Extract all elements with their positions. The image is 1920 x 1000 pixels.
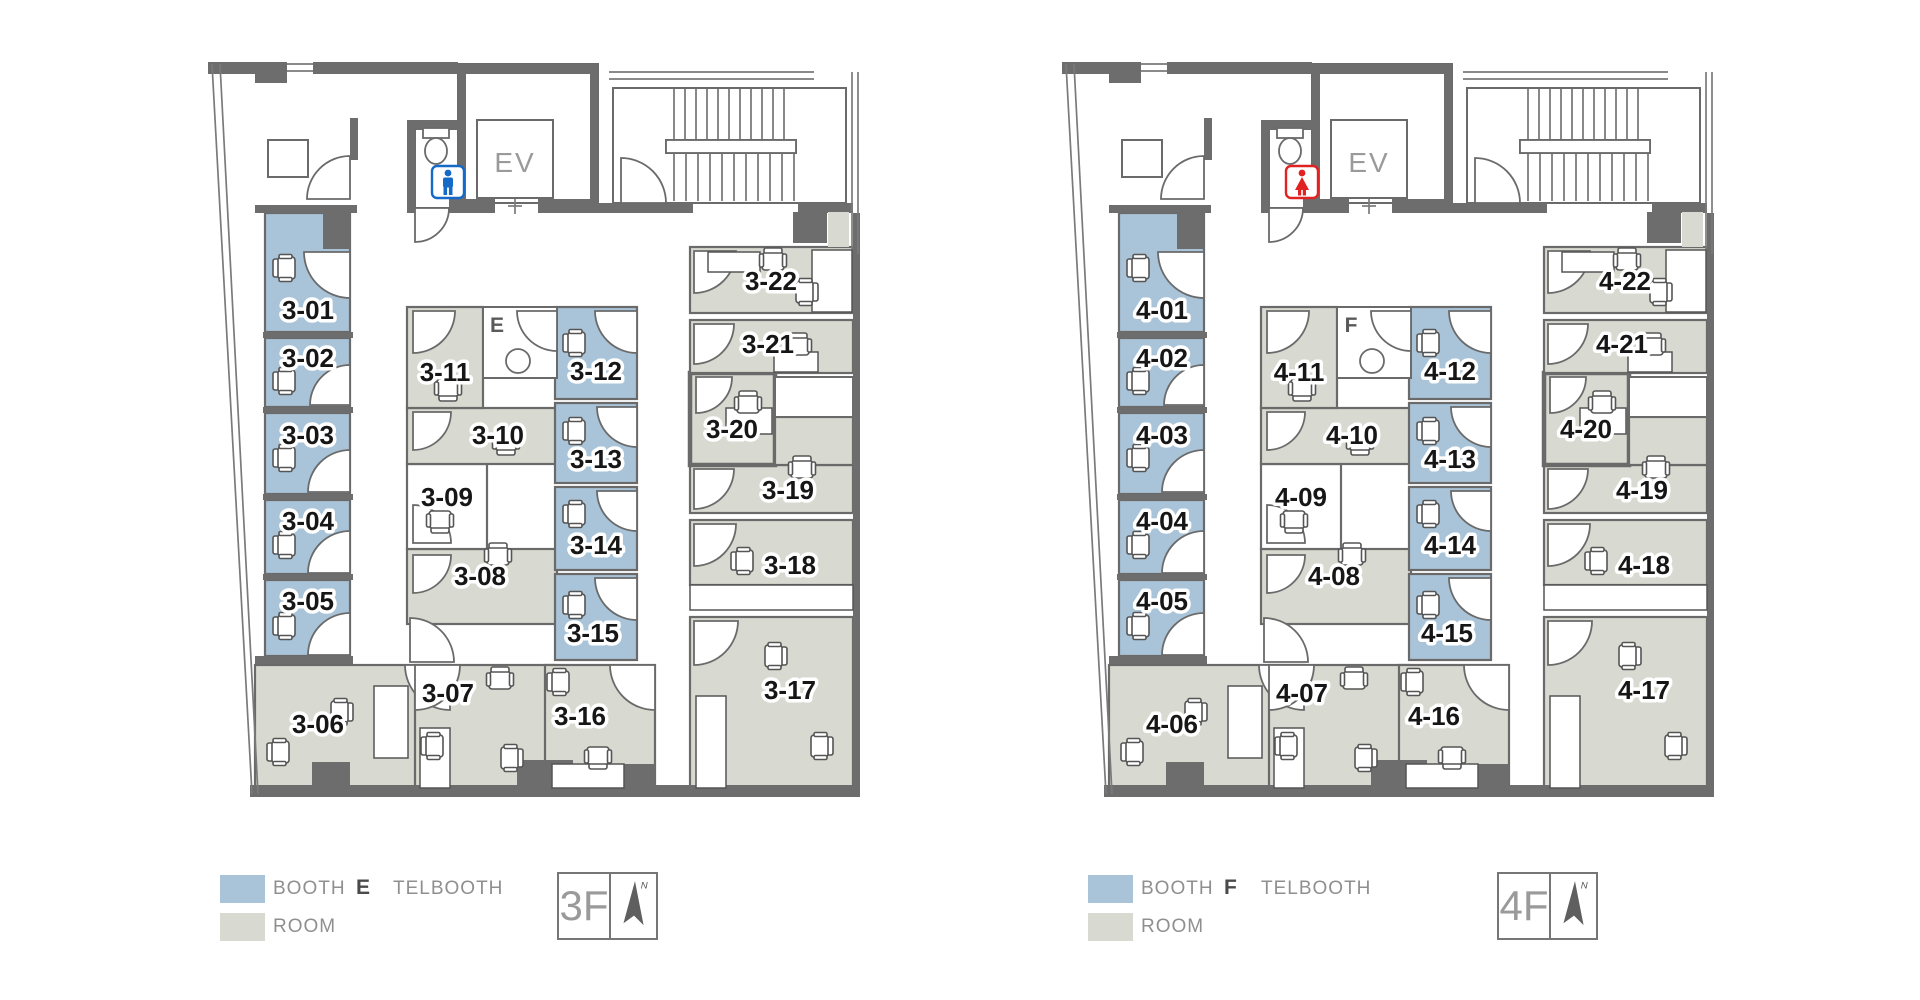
room-label-4-11: 4-11: [1274, 357, 1325, 387]
booth-color-swatch: [1088, 875, 1133, 903]
room-label-4-06: 4-06: [1146, 709, 1198, 739]
room-label-4-04: 4-04: [1136, 506, 1189, 536]
chair-icon: [735, 391, 762, 413]
toilet-icon: [1277, 128, 1303, 138]
male-restroom-icon: [432, 166, 464, 198]
wall: [1117, 407, 1207, 413]
north-compass-icon: N: [1551, 874, 1597, 938]
floor-plan-sheet: EVE3-013-023-033-043-053-063-073-083-093…: [0, 0, 1920, 1000]
wall: [1452, 203, 1547, 213]
wall-line: [1066, 64, 1106, 794]
floorplan-svg: EVE3-013-023-033-043-053-063-073-083-093…: [208, 56, 860, 797]
door-arc: [415, 208, 449, 242]
room-label-3-05: 3-05: [282, 586, 334, 616]
telbooth-legend-label: TELBOOTH: [393, 878, 503, 900]
wall: [598, 203, 693, 213]
chair-icon: [1417, 418, 1439, 445]
wall: [1117, 494, 1207, 500]
wall: [312, 762, 350, 790]
desk: [690, 585, 853, 610]
room-label-3-13: 3-13: [570, 444, 622, 474]
room-label-3-18: 3-18: [764, 550, 816, 580]
wall: [1109, 656, 1207, 664]
elevator-label: EV: [1348, 147, 1389, 178]
telbooth-legend-label: TELBOOTH: [1261, 878, 1371, 900]
chair-icon: [427, 511, 454, 533]
wall: [313, 62, 458, 74]
wall: [255, 205, 357, 213]
door-arc: [1161, 156, 1204, 199]
legend-4f: BOOTH ROOM F TELBOOTH: [1088, 875, 1568, 955]
room-label-3-15: 3-15: [567, 618, 619, 648]
chair-icon: [273, 255, 295, 282]
room-color-swatch: [1088, 913, 1133, 941]
wall: [1109, 62, 1141, 83]
wall: [793, 212, 827, 243]
wall: [1392, 199, 1452, 213]
booth-legend-label: BOOTH: [1141, 878, 1214, 900]
room-label-3-01: 3-01: [282, 295, 334, 325]
stairs-icon: [1520, 140, 1650, 153]
chair-icon: [731, 548, 753, 575]
telbooth-room-letter: E: [490, 314, 504, 337]
chair-icon: [501, 745, 523, 772]
wall-line: [1074, 64, 1112, 794]
room-label-3-17: 3-17: [764, 675, 816, 705]
floor-badge-4f: 4F N: [1497, 872, 1598, 940]
wall: [1707, 213, 1714, 797]
chair-icon: [1127, 255, 1149, 282]
room-color-swatch: [220, 913, 265, 941]
toilet-icon: [425, 138, 447, 164]
floor-badge-3f: 3F N: [557, 872, 658, 940]
chair-icon: [267, 739, 289, 766]
floor-number: 3F: [559, 874, 611, 938]
chair-icon: [1417, 592, 1439, 619]
room-legend-label: ROOM: [1141, 916, 1204, 938]
desk: [1550, 696, 1580, 788]
room-label-4-12: 4-12: [1424, 356, 1476, 386]
wall: [798, 203, 853, 213]
wall: [407, 199, 415, 213]
wall-line: [220, 64, 258, 794]
chair-icon: [487, 667, 514, 689]
wall: [1652, 203, 1707, 213]
room-label-4-14: 4-14: [1424, 530, 1477, 560]
chair-icon: [1585, 548, 1607, 575]
room-label-4-22: 4-22: [1599, 266, 1651, 296]
desk: [374, 686, 408, 758]
room-label-4-19: 4-19: [1616, 475, 1668, 505]
room-label-3-09: 3-09: [421, 482, 473, 512]
wall: [1204, 118, 1212, 160]
desk: [1406, 764, 1478, 788]
room-label-4-16: 4-16: [1408, 701, 1460, 731]
telbooth-stool: [1360, 349, 1384, 373]
wall: [1117, 574, 1207, 580]
wall: [538, 199, 598, 213]
compass-n-label: N: [641, 881, 648, 892]
chair-icon: [1127, 613, 1149, 640]
wall: [1647, 212, 1681, 243]
wall: [1444, 64, 1452, 203]
wall: [1261, 199, 1269, 213]
service-room: [775, 377, 853, 417]
wall: [1117, 332, 1207, 338]
room-label-3-22: 3-22: [745, 266, 797, 296]
floorplan-3f: EVE3-013-023-033-043-053-063-073-083-093…: [208, 56, 860, 797]
booth-legend-label: BOOTH: [273, 878, 346, 900]
chair-icon: [563, 330, 585, 357]
chair-icon: [1275, 733, 1297, 760]
room-label-3-06: 3-06: [292, 709, 344, 739]
chair-icon: [563, 592, 585, 619]
room-label-4-05: 4-05: [1136, 586, 1188, 616]
chair-icon: [421, 733, 443, 760]
door-arc: [1269, 208, 1303, 242]
wall: [263, 494, 353, 500]
toilet-icon: [1279, 138, 1301, 164]
service-room: [1122, 140, 1162, 177]
wall: [853, 213, 860, 797]
wall: [1166, 762, 1204, 790]
room-label-4-09: 4-09: [1275, 482, 1327, 512]
desk: [696, 696, 726, 788]
chair-icon: [1439, 747, 1466, 769]
chair-icon: [547, 669, 569, 696]
wall-notch: [828, 212, 849, 247]
wall: [458, 64, 598, 74]
room-label-4-03: 4-03: [1136, 420, 1188, 450]
room-label-4-17: 4-17: [1618, 675, 1670, 705]
room-label-4-01: 4-01: [1136, 295, 1188, 325]
chair-icon: [1619, 643, 1641, 670]
room-label-3-02: 3-02: [282, 343, 334, 373]
booth-color-swatch: [220, 875, 265, 903]
telbooth-letter: E: [356, 876, 370, 900]
wall: [1167, 62, 1312, 74]
chair-icon: [1665, 733, 1687, 760]
chair-icon: [563, 418, 585, 445]
room-label-4-20: 4-20: [1560, 414, 1612, 444]
wall: [323, 213, 350, 249]
stairs-icon: [666, 140, 796, 153]
desk: [1228, 686, 1262, 758]
chair-icon: [765, 643, 787, 670]
wall: [1109, 205, 1211, 213]
floorplan-svg: EVF4-014-024-034-044-054-064-074-084-094…: [1062, 56, 1714, 797]
wall: [590, 64, 598, 203]
wall: [263, 574, 353, 580]
desk: [552, 764, 624, 788]
chair-icon: [585, 747, 612, 769]
wall: [255, 62, 287, 83]
floorplan-4f: EVF4-014-024-034-044-054-064-074-084-094…: [1062, 56, 1714, 797]
wall-notch: [1682, 212, 1703, 247]
room-legend-label: ROOM: [273, 916, 336, 938]
room-label-3-08: 3-08: [454, 561, 506, 591]
wall: [1177, 213, 1204, 249]
chair-icon: [563, 501, 585, 528]
floor-number: 4F: [1499, 874, 1551, 938]
room-label-3-04: 3-04: [282, 506, 335, 536]
room-label-3-10: 3-10: [472, 420, 524, 450]
chair-icon: [1281, 511, 1308, 533]
wall: [263, 407, 353, 413]
wall: [350, 118, 358, 160]
room-label-4-08: 4-08: [1308, 561, 1360, 591]
room-label-4-15: 4-15: [1421, 618, 1473, 648]
telbooth-stool: [506, 349, 530, 373]
wall: [449, 199, 495, 213]
room-label-4-10: 4-10: [1326, 420, 1378, 450]
room-label-4-18: 4-18: [1618, 550, 1670, 580]
room-label-3-20: 3-20: [706, 414, 758, 444]
chair-icon: [1650, 279, 1672, 306]
north-compass-icon: N: [611, 874, 657, 938]
chair-icon: [1121, 739, 1143, 766]
chair-icon: [811, 733, 833, 760]
chair-icon: [1589, 391, 1616, 413]
room-label-3-21: 3-21: [742, 329, 794, 359]
room-label-3-03: 3-03: [282, 420, 334, 450]
telbooth-letter: F: [1224, 876, 1237, 900]
chair-icon: [1417, 330, 1439, 357]
desk: [812, 250, 852, 312]
chair-icon: [1401, 669, 1423, 696]
room-label-3-07: 3-07: [422, 678, 474, 708]
desk: [1544, 585, 1707, 610]
compass-n-label: N: [1581, 881, 1588, 892]
wall-line: [212, 64, 252, 794]
room-label-3-19: 3-19: [762, 475, 814, 505]
chair-icon: [1355, 745, 1377, 772]
room-label-3-12: 3-12: [570, 356, 622, 386]
chair-icon: [796, 279, 818, 306]
room-label-4-13: 4-13: [1424, 444, 1476, 474]
room-label-3-11: 3-11: [420, 357, 471, 387]
chair-icon: [1341, 667, 1368, 689]
service-room: [268, 140, 308, 177]
room-extension: [1629, 417, 1707, 465]
chair-icon: [1417, 501, 1439, 528]
wall: [1312, 64, 1452, 74]
toilet-icon: [423, 128, 449, 138]
room-extension: [775, 417, 853, 465]
room-label-3-14: 3-14: [570, 530, 623, 560]
room-label-4-02: 4-02: [1136, 343, 1188, 373]
female-restroom-icon: [1286, 166, 1318, 198]
elevator-label: EV: [494, 147, 535, 178]
room-label-4-21: 4-21: [1596, 329, 1648, 359]
chair-icon: [273, 613, 295, 640]
door-arc: [307, 156, 350, 199]
wall: [255, 656, 353, 664]
wall: [263, 332, 353, 338]
telbooth-room-letter: F: [1345, 314, 1358, 337]
room-label-3-16: 3-16: [554, 701, 606, 731]
room-label-4-07: 4-07: [1276, 678, 1328, 708]
wall: [1303, 199, 1349, 213]
desk: [1666, 250, 1706, 312]
service-room: [1629, 377, 1707, 417]
